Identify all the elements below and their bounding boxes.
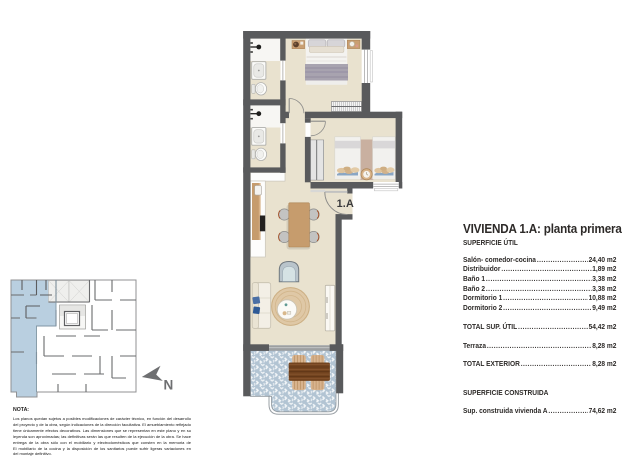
svg-text:N: N bbox=[164, 378, 174, 393]
svg-text:1.A: 1.A bbox=[337, 198, 354, 210]
